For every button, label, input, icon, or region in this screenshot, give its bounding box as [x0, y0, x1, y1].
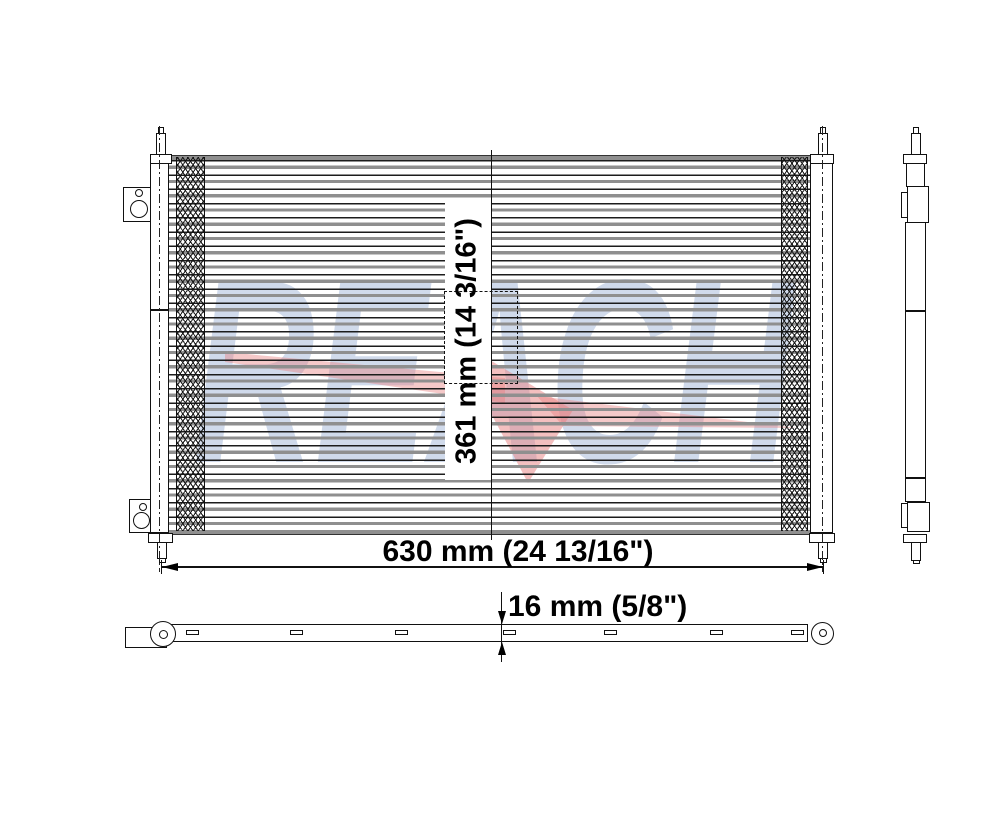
bottom-bar-slot: [186, 630, 199, 635]
bottom-bar-slot: [791, 630, 804, 635]
height-dimension-label: 361 mm (14 3/16"): [451, 218, 484, 464]
bracket-bottom-small-hole: [139, 503, 147, 511]
depth-dimension-label: 16 mm (5/8"): [508, 590, 687, 624]
core-center-line: [491, 150, 493, 540]
core-fins-right: [781, 157, 808, 531]
bottom-bar-slot: [503, 630, 516, 635]
width-arrow-left: [162, 563, 178, 571]
side-top-block: [907, 186, 929, 223]
side-bottom-pin: [911, 542, 921, 561]
core-fins-left: [176, 157, 205, 531]
bottom-bar-slot: [290, 630, 303, 635]
side-column-divider-upper: [905, 310, 926, 312]
right-tank-centerline: [822, 126, 824, 572]
bottom-bar-slot: [710, 630, 723, 635]
bottom-bar-slot: [395, 630, 408, 635]
width-arrow-right: [807, 563, 823, 571]
depth-arrow-down: [498, 611, 506, 624]
depth-arrow-up: [498, 642, 506, 655]
left-top-pin: [156, 133, 166, 155]
bottom-right-boss-hole: [819, 629, 827, 637]
width-dimension-label: 630 mm (24 13/16"): [368, 535, 668, 569]
core-top-plate: [168, 155, 810, 160]
condenser-technical-drawing: REACH 361 mm (14 3/16"): [0, 0, 1002, 831]
left-tank-top-cap: [150, 154, 172, 164]
side-bottom-pin-tip: [913, 560, 920, 564]
bottom-bar-slot: [604, 630, 617, 635]
bottom-left-boss-hole: [159, 630, 168, 639]
side-bottom-block: [907, 502, 930, 532]
side-column: [905, 222, 926, 502]
side-top-neck: [906, 163, 925, 187]
side-top-pin: [911, 133, 921, 155]
side-column-divider-lower: [905, 477, 926, 479]
bracket-top-large-hole: [130, 200, 148, 218]
bracket-bottom-large-hole: [133, 512, 150, 529]
left-tank-centerline: [159, 126, 161, 572]
bracket-top-small-hole: [135, 189, 143, 197]
